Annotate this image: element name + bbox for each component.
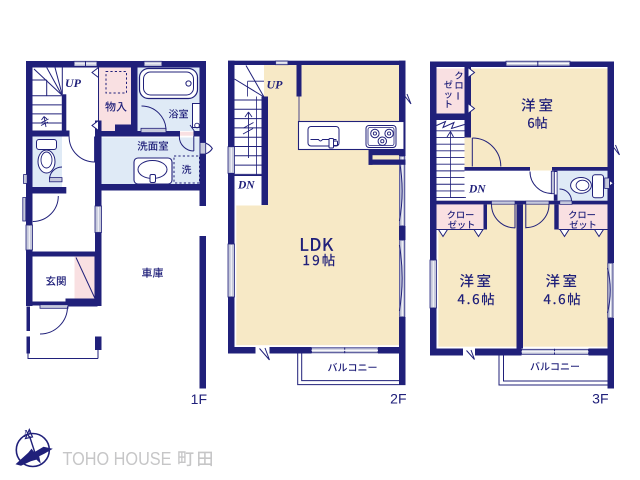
svg-text:2F: 2F xyxy=(390,391,406,407)
svg-text:UP: UP xyxy=(65,76,82,90)
svg-text:TOHO HOUSE: TOHO HOUSE xyxy=(63,448,172,469)
svg-text:3F: 3F xyxy=(592,391,608,407)
svg-text:1F: 1F xyxy=(191,391,207,407)
svg-text:DN: DN xyxy=(237,180,255,192)
svg-text:UP: UP xyxy=(267,78,284,92)
svg-text:DN: DN xyxy=(468,184,486,196)
